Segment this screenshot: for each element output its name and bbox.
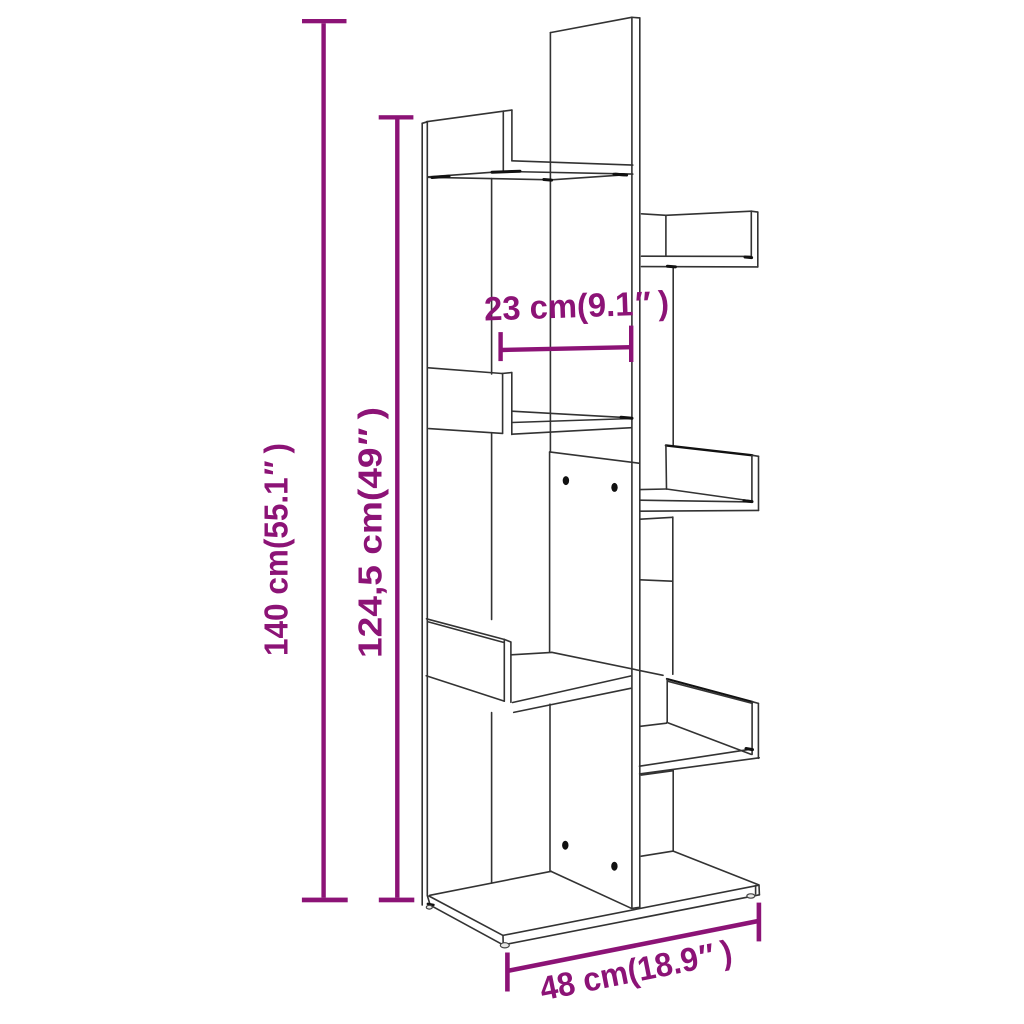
svg-text:140 cm(55.1″ ): 140 cm(55.1″ ) (259, 443, 296, 656)
svg-text:124,5 cm(49″ ): 124,5 cm(49″ ) (353, 407, 390, 658)
svg-text:23 cm(9.1″ ): 23 cm(9.1″ ) (483, 285, 669, 328)
